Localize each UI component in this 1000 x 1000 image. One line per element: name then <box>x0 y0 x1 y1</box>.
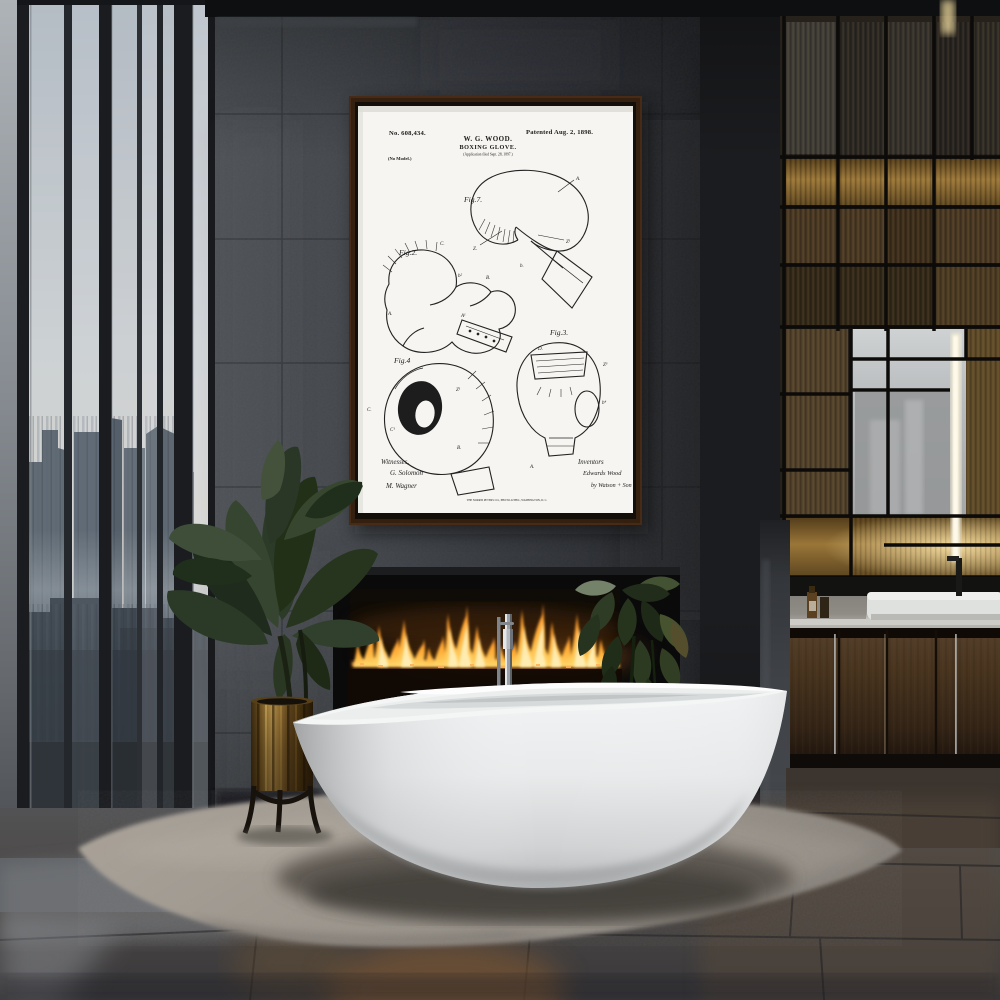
svg-text:Fig.4: Fig.4 <box>393 356 410 365</box>
svg-text:Fig.3.: Fig.3. <box>549 328 568 337</box>
svg-text:b.: b. <box>520 264 524 269</box>
svg-text:Z¹: Z¹ <box>566 239 571 245</box>
svg-text:Edwards Wood: Edwards Wood <box>582 470 622 477</box>
svg-text:A.: A. <box>529 465 534 470</box>
svg-text:Z³: Z³ <box>603 362 608 368</box>
svg-text:Inventors: Inventors <box>577 459 604 466</box>
svg-text:C.: C. <box>367 408 372 413</box>
svg-text:Fig.7.: Fig.7. <box>463 195 482 204</box>
svg-text:D.: D. <box>537 347 543 352</box>
svg-text:Patented Aug. 2, 1898.: Patented Aug. 2, 1898. <box>526 129 593 136</box>
svg-text:(No Model.): (No Model.) <box>388 156 412 161</box>
svg-text:b⁴: b⁴ <box>602 400 607 406</box>
svg-text:Fig.2.: Fig.2. <box>398 248 417 257</box>
svg-text:BOXING GLOVE.: BOXING GLOVE. <box>459 144 516 151</box>
svg-text:No. 608,434.: No. 608,434. <box>389 130 426 137</box>
svg-text:B.: B. <box>486 276 490 281</box>
svg-text:THE NORRIS PETERS CO., PHOTO-L: THE NORRIS PETERS CO., PHOTO-LITHO., WAS… <box>467 499 548 502</box>
svg-text:W. G. WOOD.: W. G. WOOD. <box>464 135 513 143</box>
svg-text:A.: A. <box>575 177 580 182</box>
svg-text:M. Wagner: M. Wagner <box>385 482 417 490</box>
svg-text:Witnesses,: Witnesses, <box>381 459 409 466</box>
svg-text:A.: A. <box>387 312 392 317</box>
svg-text:Z¹: Z¹ <box>456 387 461 393</box>
svg-text:G. Solomon: G. Solomon <box>390 469 424 477</box>
svg-text:b²: b² <box>458 273 463 279</box>
svg-text:A¹: A¹ <box>460 313 466 319</box>
svg-text:B.: B. <box>457 446 461 451</box>
svg-text:Z.: Z. <box>473 247 477 252</box>
svg-text:by Watson + Son: by Watson + Son <box>591 483 632 489</box>
svg-text:C¹: C¹ <box>390 427 395 433</box>
svg-text:C.: C. <box>440 242 445 247</box>
